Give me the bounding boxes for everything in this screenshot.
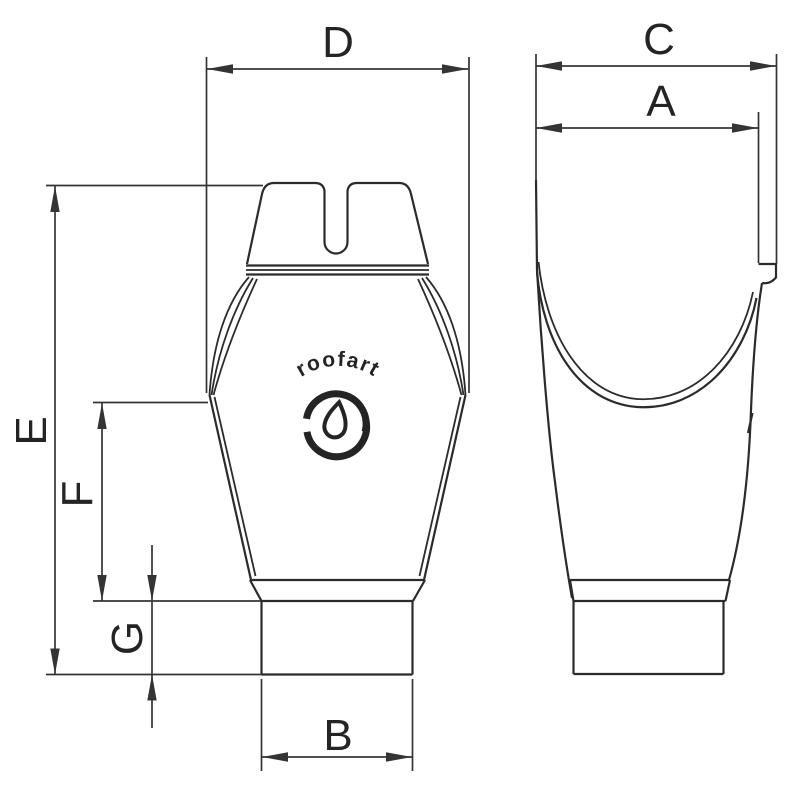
- dimension-a: A: [536, 77, 759, 263]
- side-view: [536, 54, 776, 674]
- dim-g-arrow-top: [147, 575, 156, 601]
- side-outlet-pipe: [574, 601, 724, 674]
- dim-c-arrow-right: [750, 61, 776, 70]
- dim-g-arrow-bottom: [147, 675, 156, 701]
- front-body-right-inner-edge: [420, 397, 461, 576]
- front-top-plate-outline: [247, 183, 428, 264]
- dim-a-arrow-right: [732, 123, 758, 132]
- side-right-edge: [729, 283, 762, 580]
- dim-e-arrow-top: [50, 186, 59, 212]
- dim-b-label: B: [323, 711, 352, 760]
- dimension-g: G: [103, 545, 157, 728]
- dim-f-label: F: [53, 481, 102, 508]
- front-body-left-edge: [210, 395, 252, 580]
- dim-g-label: G: [103, 621, 152, 655]
- dim-a-label: A: [646, 77, 676, 126]
- water-drop-icon: [323, 400, 350, 439]
- front-outlet-pipe: [262, 601, 413, 675]
- dim-b-arrow-right: [386, 752, 412, 761]
- side-collar: [570, 580, 730, 601]
- brand-wordmark: roofart: [292, 348, 384, 382]
- dimension-b: B: [262, 679, 413, 771]
- dimensions: D C A E: [7, 15, 777, 771]
- logo-swirl-top-arc: [307, 394, 367, 432]
- dim-a-arrow-left: [536, 123, 562, 132]
- dim-e-label: E: [7, 416, 56, 445]
- side-rear-hook: [759, 264, 777, 283]
- dimension-f: F: [53, 403, 261, 602]
- brand-wordmark-text: roofart: [292, 348, 384, 382]
- side-bowl-inner-curve: [539, 262, 754, 399]
- dim-d-arrow-right: [442, 64, 468, 73]
- dim-f-arrow-bottom: [97, 575, 106, 601]
- water-drop-outline: [323, 400, 350, 439]
- dim-c-label: C: [643, 15, 675, 64]
- front-collar: [250, 580, 425, 601]
- dim-d-label: D: [322, 18, 354, 67]
- side-left-edge: [536, 180, 572, 598]
- dim-e-arrow-bottom: [50, 649, 59, 675]
- dim-b-arrow-left: [262, 752, 288, 761]
- dim-c-arrow-left: [536, 61, 562, 70]
- dimension-d: D: [207, 18, 470, 393]
- gutter-outlet-drawing: roofart D: [0, 0, 800, 800]
- dim-f-arrow-top: [97, 403, 106, 429]
- side-bowl-outer-curve: [537, 272, 757, 407]
- technical-drawing-page: roofart D: [0, 0, 800, 800]
- front-body-left-inner-edge: [215, 397, 256, 576]
- dim-d-arrow-left: [207, 64, 233, 73]
- brand-logo: roofart: [292, 348, 384, 457]
- front-body-right-edge: [424, 395, 466, 580]
- dimension-c: C: [536, 15, 777, 264]
